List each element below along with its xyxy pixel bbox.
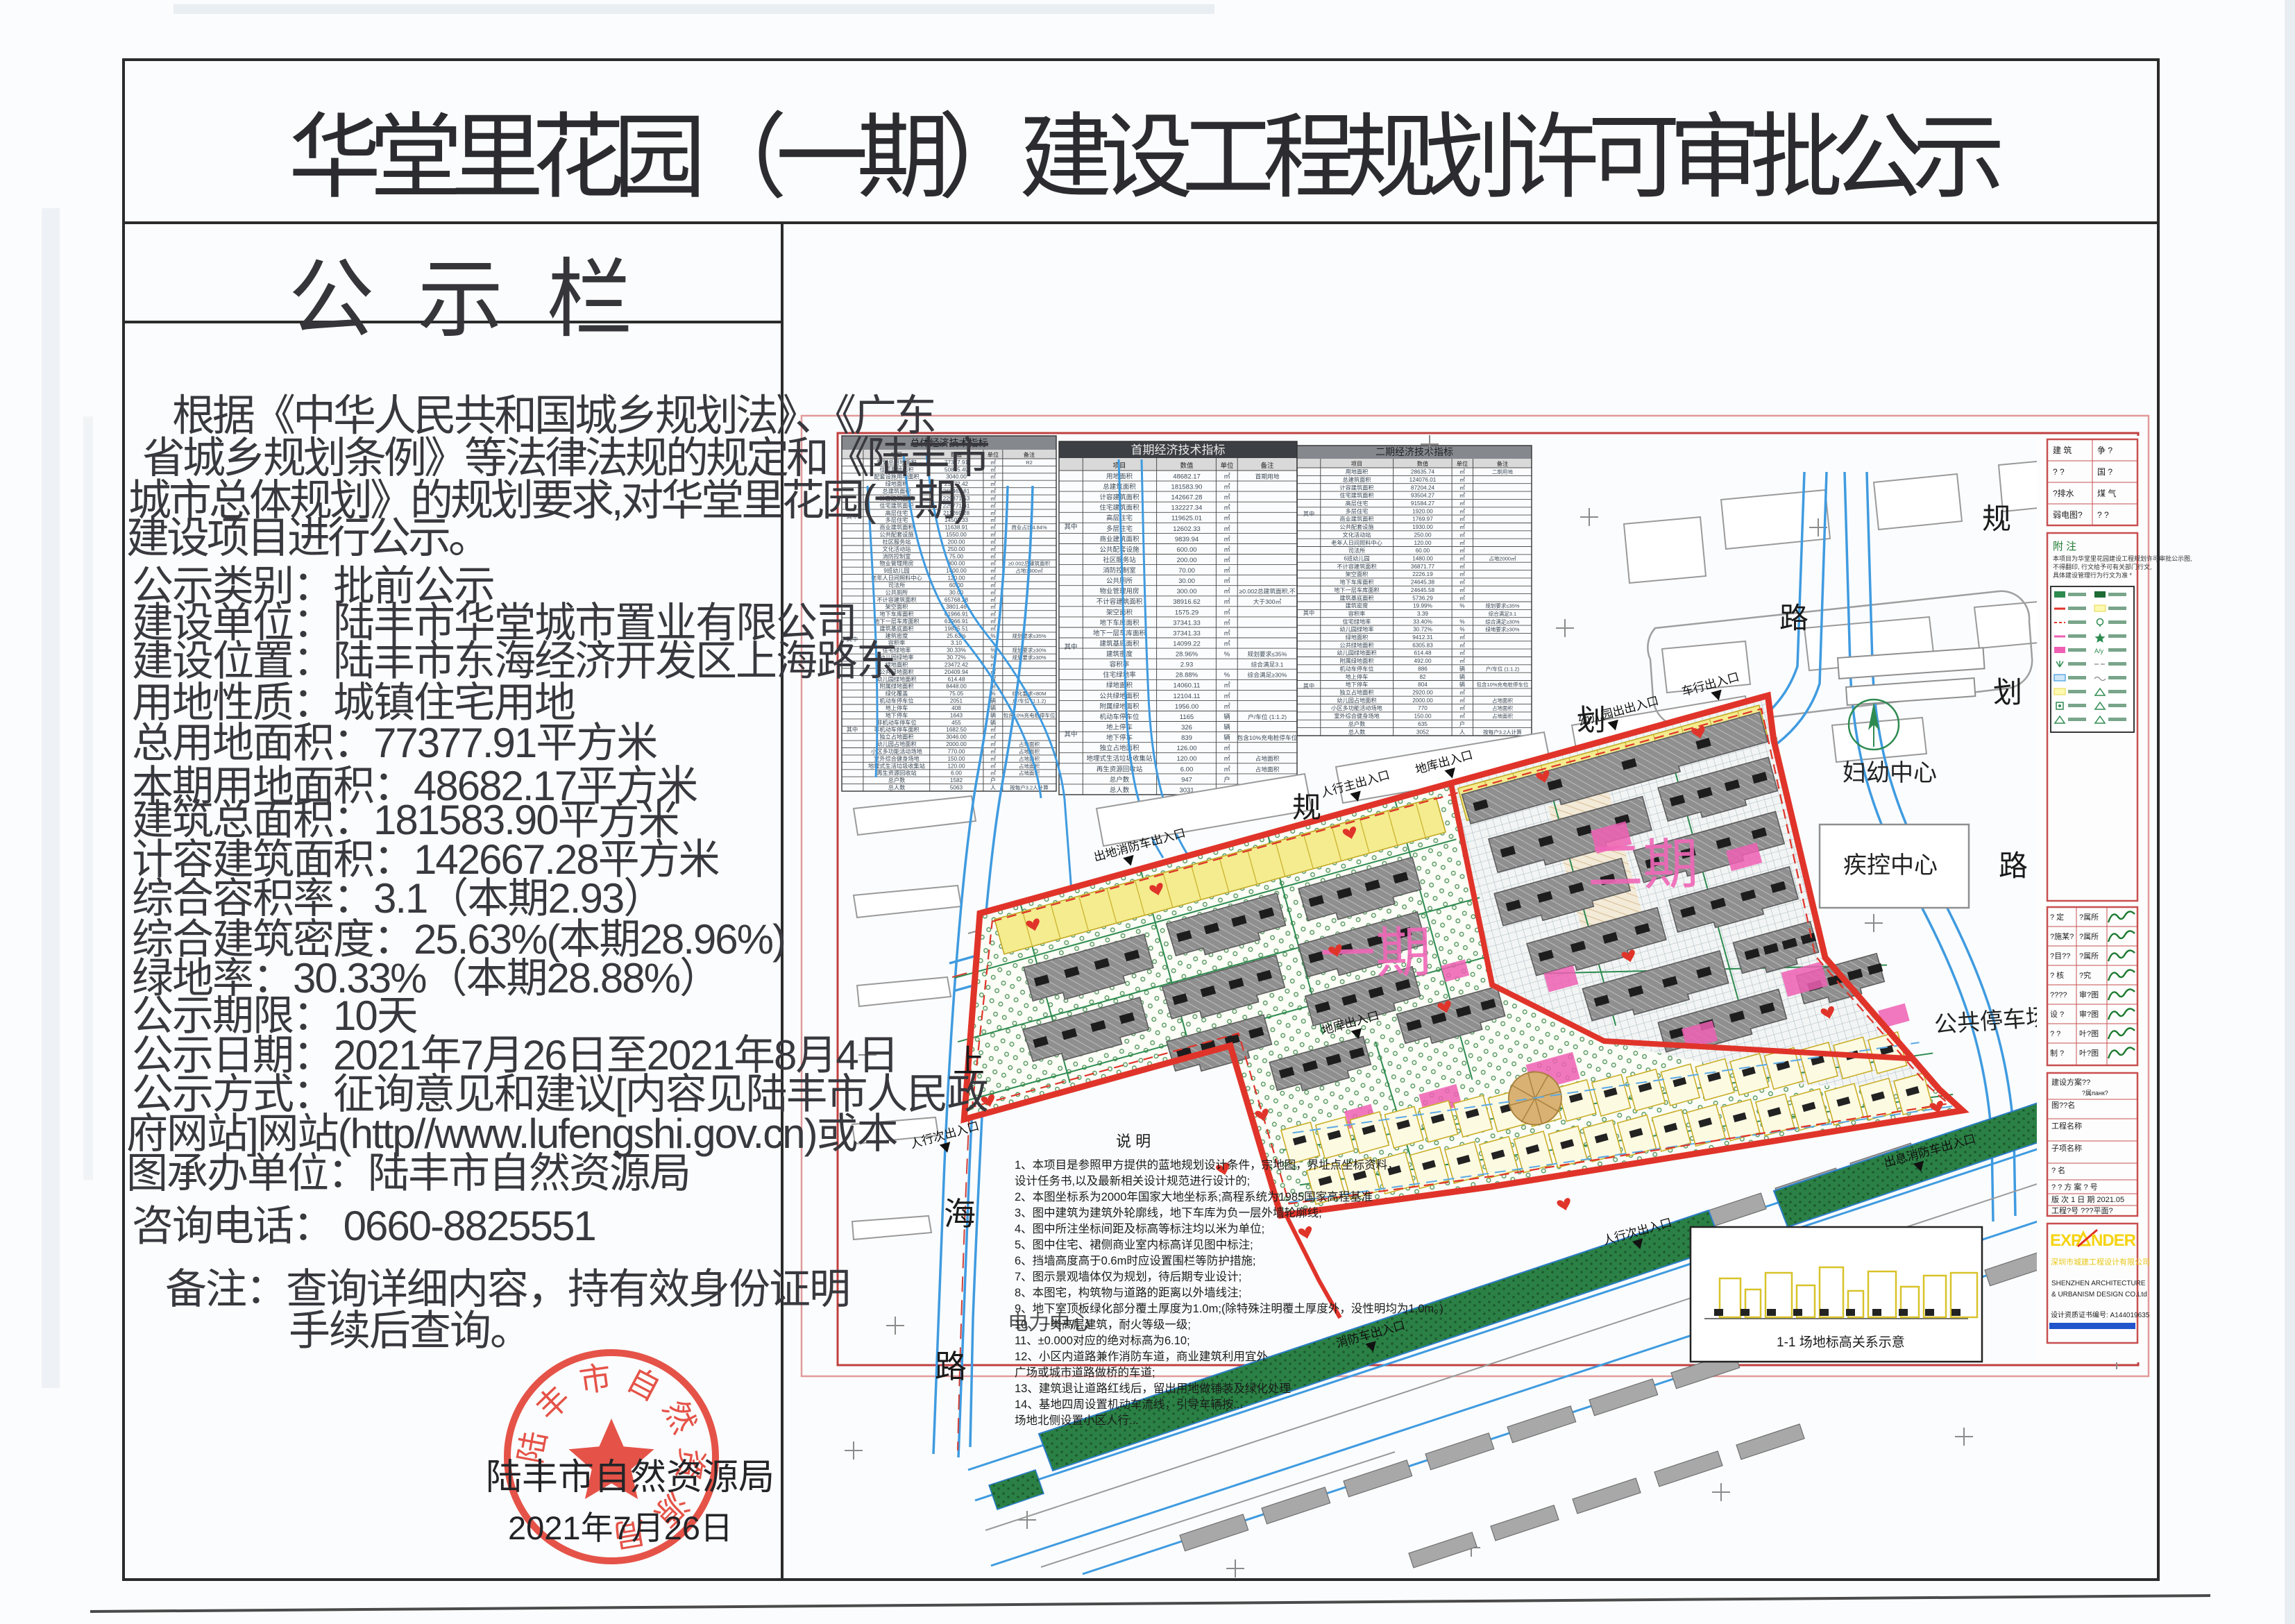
svg-text:辆: 辆 xyxy=(1223,734,1230,742)
svg-text:辆: 辆 xyxy=(1223,713,1230,721)
svg-text:408: 408 xyxy=(951,705,961,711)
svg-text:设计资质证书编号: A144019635: 设计资质证书编号: A144019635 xyxy=(2051,1310,2150,1319)
svg-text:规: 规 xyxy=(1292,791,1321,824)
svg-text:㎡: ㎡ xyxy=(1223,484,1230,491)
svg-text:? ?: ? ? xyxy=(2053,467,2065,477)
svg-text:87204.24: 87204.24 xyxy=(1411,484,1435,491)
svg-text:㎡: ㎡ xyxy=(1223,505,1230,512)
svg-text:%: % xyxy=(1459,627,1464,633)
svg-text:附属绿地面积: 附属绿地面积 xyxy=(1099,702,1140,711)
svg-text:妇幼中心: 妇幼中心 xyxy=(1843,760,1937,786)
svg-text:商业建筑面积: 商业建筑面积 xyxy=(1339,516,1373,523)
svg-text:二期经济技术指标: 二期经济技术指标 xyxy=(1375,446,1453,457)
svg-text:㎡: ㎡ xyxy=(1223,693,1230,700)
svg-text:地上停车: 地上停车 xyxy=(1346,673,1369,680)
svg-text:13、建筑退让道路红线后，留出用地做铺装及绿化处理: 13、建筑退让道路红线后，留出用地做铺装及绿化处理 xyxy=(1015,1382,1291,1395)
svg-text:建筑基底面积: 建筑基底面积 xyxy=(1339,594,1373,601)
svg-text:14、基地四周设置机动车流线，引导车辆按...: 14、基地四周设置机动车流线，引导车辆按... xyxy=(1015,1398,1243,1411)
svg-text:煤 气: 煤 气 xyxy=(2097,488,2116,498)
svg-text:㎡: ㎡ xyxy=(1459,587,1465,593)
svg-text:户/车位 (1:1.2): 户/车位 (1:1.2) xyxy=(1248,713,1287,720)
svg-text:? 名: ? 名 xyxy=(2051,1165,2065,1175)
svg-text:7、图示景观墙体仅为规划，待后期专业设计;: 7、图示景观墙体仅为规划，待后期专业设计; xyxy=(1015,1270,1242,1283)
svg-text:2.93: 2.93 xyxy=(1180,661,1194,669)
svg-text:82: 82 xyxy=(1419,674,1426,680)
svg-text:㎡: ㎡ xyxy=(1459,548,1465,554)
svg-text:28.88%: 28.88% xyxy=(1176,672,1199,679)
svg-text:规划要求≤35%: 规划要求≤35% xyxy=(1012,632,1046,639)
svg-text:6班幼儿园: 6班幼儿园 xyxy=(1344,555,1369,562)
svg-text:地上停车: 地上停车 xyxy=(1106,723,1133,731)
svg-text:计容建筑面积: 计容建筑面积 xyxy=(1339,484,1373,491)
svg-text:司法所: 司法所 xyxy=(888,582,906,589)
svg-text:㎡: ㎡ xyxy=(1459,713,1465,720)
svg-text:119625.01: 119625.01 xyxy=(1171,515,1202,523)
svg-text:33.40%: 33.40% xyxy=(1413,618,1432,625)
svg-text:㎡: ㎡ xyxy=(1223,598,1230,606)
svg-text:机动车停车位: 机动车停车位 xyxy=(1099,713,1140,721)
svg-text:1-1 场地标高关系示意: 1-1 场地标高关系示意 xyxy=(1777,1335,1905,1350)
svg-text:占地面积: 占地面积 xyxy=(1019,741,1040,747)
svg-text:8448.00: 8448.00 xyxy=(946,684,967,690)
svg-text:包含10%充电桩停车位: 包含10%充电桩停车位 xyxy=(1476,681,1529,688)
svg-text:㎡: ㎡ xyxy=(1223,641,1230,648)
svg-text:高层住宅: 高层住宅 xyxy=(1346,500,1369,507)
svg-text:150.00: 150.00 xyxy=(1414,713,1431,720)
svg-text:㎡: ㎡ xyxy=(990,582,996,589)
svg-text:其中: 其中 xyxy=(1303,609,1314,616)
svg-text:住宅绿地率: 住宅绿地率 xyxy=(1103,671,1136,679)
svg-text:1769.97: 1769.97 xyxy=(1412,516,1433,523)
svg-text:6.00: 6.00 xyxy=(951,770,962,777)
svg-text:㎡: ㎡ xyxy=(990,525,996,531)
svg-text:辆: 辆 xyxy=(1223,723,1230,731)
svg-text:建筑密度: 建筑密度 xyxy=(1106,650,1133,659)
svg-text:总户数: 总户数 xyxy=(1110,775,1130,784)
svg-text:1550.00: 1550.00 xyxy=(946,532,967,538)
svg-text:说 明: 说 明 xyxy=(1116,1133,1151,1150)
svg-text:?目??: ?目?? xyxy=(2050,952,2070,961)
svg-text:路: 路 xyxy=(935,1348,967,1385)
svg-text:物业管理用房: 物业管理用房 xyxy=(879,560,913,567)
svg-text:㎡: ㎡ xyxy=(1459,690,1465,696)
svg-text:再生资源回收站: 再生资源回收站 xyxy=(1096,765,1143,773)
svg-text:㎡: ㎡ xyxy=(990,625,996,632)
svg-text:叶?图: 叶?图 xyxy=(2079,1029,2099,1038)
svg-text:消防控制室: 消防控制室 xyxy=(1103,566,1136,575)
svg-text:839: 839 xyxy=(1181,734,1192,742)
svg-text:947: 947 xyxy=(1181,776,1192,784)
svg-text:㎡: ㎡ xyxy=(1223,629,1230,637)
svg-text:30.72%: 30.72% xyxy=(1413,627,1432,633)
svg-text:容积率: 容积率 xyxy=(1110,661,1130,669)
svg-text:250.00: 250.00 xyxy=(947,546,965,552)
svg-text:48682.17: 48682.17 xyxy=(1173,473,1201,480)
svg-text:㎡: ㎡ xyxy=(1459,634,1465,641)
svg-text:1920.00: 1920.00 xyxy=(1412,508,1433,514)
svg-text:132227.34: 132227.34 xyxy=(1171,505,1203,512)
svg-text:142667.28: 142667.28 xyxy=(1171,494,1203,502)
svg-text:地下一层车库面积: 地下一层车库面积 xyxy=(1334,586,1380,593)
svg-text:社区服务站: 社区服务站 xyxy=(1103,556,1136,564)
svg-text:A/y: A/y xyxy=(2094,648,2104,654)
svg-text:幼儿园占地面积: 幼儿园占地面积 xyxy=(1337,697,1376,704)
svg-text:200.00: 200.00 xyxy=(1176,557,1196,564)
svg-text:小区多功能活动场地: 小区多功能活动场地 xyxy=(1331,704,1382,711)
svg-text:设计任务书,以及最新相关设计规范进行设计的;: 设计任务书,以及最新相关设计规范进行设计的; xyxy=(1015,1174,1250,1187)
svg-text:公共配套设施: 公共配套设施 xyxy=(1099,545,1140,554)
svg-text:户: 户 xyxy=(990,777,996,784)
svg-text:㎡: ㎡ xyxy=(990,727,996,733)
svg-text:120.00: 120.00 xyxy=(947,575,965,582)
svg-text:614.48: 614.48 xyxy=(1414,650,1431,657)
svg-text:6、挡墙高度高于0.6m时应设置围栏等防护措施;: 6、挡墙高度高于0.6m时应设置围栏等防护措施; xyxy=(1015,1254,1255,1267)
svg-text:150.00: 150.00 xyxy=(947,756,965,762)
svg-text:30.72%: 30.72% xyxy=(947,654,966,661)
svg-text:2、本图坐标系为2000年国家大地坐标系;高程系统为1985: 2、本图坐标系为2000年国家大地坐标系;高程系统为1985国家高程基准 xyxy=(1015,1190,1373,1203)
svg-text:㎡: ㎡ xyxy=(1223,494,1230,502)
svg-text:不计容建筑面积: 不计容建筑面积 xyxy=(1337,563,1376,570)
svg-text:路: 路 xyxy=(1779,602,1809,634)
svg-text:其中: 其中 xyxy=(1303,682,1314,689)
svg-text:规划要求≤35%: 规划要求≤35% xyxy=(1248,650,1287,658)
svg-text:备注: 备注 xyxy=(1260,462,1274,470)
svg-text:户: 户 xyxy=(1459,720,1465,727)
svg-text:综合满足3.1: 综合满足3.1 xyxy=(1251,661,1284,668)
svg-text:㎡: ㎡ xyxy=(1223,515,1230,523)
svg-text:㎡: ㎡ xyxy=(990,532,996,538)
svg-text:占地面积: 占地面积 xyxy=(1492,704,1513,711)
svg-text:项目: 项目 xyxy=(1351,461,1362,467)
svg-text:㎡: ㎡ xyxy=(1459,469,1465,475)
svg-text:独立占地面积: 独立占地面积 xyxy=(1099,744,1140,752)
svg-text:幼儿园占地面积: 幼儿园占地面积 xyxy=(876,741,916,747)
svg-text:㎡: ㎡ xyxy=(1459,540,1465,546)
svg-text:㎡: ㎡ xyxy=(1459,500,1465,507)
svg-text:9、地下室顶板绿化部分覆土厚度为1.0m;(除特殊注明覆土厚: 9、地下室顶板绿化部分覆土厚度为1.0m;(除特殊注明覆土厚度外，没性明均为1.… xyxy=(1015,1302,1443,1315)
svg-text:㎡: ㎡ xyxy=(1223,703,1230,711)
svg-text:%: % xyxy=(990,633,995,639)
svg-text:文化活动站: 文化活动站 xyxy=(883,545,911,552)
svg-text:14060.11: 14060.11 xyxy=(1174,682,1201,690)
svg-text:455: 455 xyxy=(951,720,961,726)
svg-text:室外综合健身场地: 室外综合健身场地 xyxy=(1334,713,1380,720)
svg-text:辆: 辆 xyxy=(1459,673,1465,680)
svg-text:辆: 辆 xyxy=(990,711,996,718)
svg-text:首期经济技术指标: 首期经济技术指标 xyxy=(1131,443,1226,457)
svg-text:635: 635 xyxy=(1418,721,1428,727)
svg-text:38916.62: 38916.62 xyxy=(1173,598,1201,606)
svg-text:㎡: ㎡ xyxy=(1459,508,1465,514)
svg-text:30.33%: 30.33% xyxy=(947,648,966,654)
svg-text:?排水: ?排水 xyxy=(2053,489,2074,498)
svg-text:物业管理用房: 物业管理用房 xyxy=(1099,587,1139,595)
svg-text:公共厕所: 公共厕所 xyxy=(886,589,908,595)
svg-text:总户数: 总户数 xyxy=(888,777,906,784)
svg-text:㎡: ㎡ xyxy=(1459,642,1465,648)
svg-text:㎡: ㎡ xyxy=(990,734,996,741)
svg-text:24645.38: 24645.38 xyxy=(1411,580,1435,586)
svg-text:架空面积: 架空面积 xyxy=(1346,570,1369,577)
svg-text:幼儿园绿地面积: 幼儿园绿地面积 xyxy=(1337,650,1376,657)
svg-text:地下停车: 地下停车 xyxy=(1346,681,1369,688)
svg-text:3.10: 3.10 xyxy=(951,640,962,646)
svg-text:其中: 其中 xyxy=(1064,730,1077,738)
svg-text:㎡: ㎡ xyxy=(1459,477,1465,483)
svg-text:? ?: ? ? xyxy=(2097,510,2109,520)
svg-text:其中: 其中 xyxy=(1064,523,1077,531)
svg-text:制 ?: 制 ? xyxy=(2050,1049,2064,1058)
svg-text:㎡: ㎡ xyxy=(1459,532,1465,539)
svg-text:总户数: 总户数 xyxy=(1348,720,1366,727)
svg-text:㎡: ㎡ xyxy=(990,763,996,769)
svg-text:公共绿地面积: 公共绿地面积 xyxy=(1099,692,1140,700)
svg-text:住宅建筑面积: 住宅建筑面积 xyxy=(1339,492,1373,499)
svg-text:1643: 1643 xyxy=(950,712,963,718)
svg-text:37341.33: 37341.33 xyxy=(1173,629,1201,637)
svg-text:㎡: ㎡ xyxy=(1223,473,1230,480)
svg-text:770: 770 xyxy=(1418,705,1428,711)
svg-text:幼儿园绿地率: 幼儿园绿地率 xyxy=(1339,626,1373,633)
svg-text:37341.33: 37341.33 xyxy=(1173,619,1201,627)
svg-text:10、一类高层建筑，耐火等级一级;: 10、一类高层建筑，耐火等级一级; xyxy=(1015,1318,1191,1331)
svg-text:㎡: ㎡ xyxy=(1459,580,1465,586)
svg-text:叶?图: 叶?图 xyxy=(2079,1049,2099,1058)
svg-text:备注: 备注 xyxy=(1024,451,1035,458)
svg-text:单位: 单位 xyxy=(1457,460,1468,467)
svg-text:120.00: 120.00 xyxy=(1414,540,1431,546)
svg-text:场地北侧设置小区人行...: 场地北侧设置小区人行... xyxy=(1015,1414,1139,1427)
svg-text:社区服务站: 社区服务站 xyxy=(883,539,911,545)
svg-text:人: 人 xyxy=(990,785,996,791)
svg-text:6.00: 6.00 xyxy=(1180,766,1194,773)
svg-text:占地面积: 占地面积 xyxy=(1019,762,1040,769)
svg-text:㎡: ㎡ xyxy=(990,597,996,603)
svg-text:600.00: 600.00 xyxy=(1176,546,1196,554)
svg-text:%: % xyxy=(1459,618,1464,625)
svg-text:建筑基底面积: 建筑基底面积 xyxy=(1099,640,1140,648)
svg-text:建设方案??: 建设方案?? xyxy=(2051,1077,2090,1087)
svg-text:2226.19: 2226.19 xyxy=(1412,571,1433,577)
svg-text:≥0.002总建筑面积,不: ≥0.002总建筑面积,不 xyxy=(1239,587,1295,595)
svg-text:61966.91: 61966.91 xyxy=(945,618,969,625)
svg-text:首期用地: 首期用地 xyxy=(1255,472,1280,480)
svg-text:室外综合健身场地: 室外综合健身场地 xyxy=(874,755,920,762)
svg-text:子项名称: 子项名称 xyxy=(2051,1143,2082,1153)
svg-text:㎡: ㎡ xyxy=(990,770,996,777)
svg-text:版 次 1 日 期 2021.05: 版 次 1 日 期 2021.05 xyxy=(2051,1194,2124,1204)
svg-text:?属панк?: ?属панк? xyxy=(2082,1090,2108,1097)
svg-text:91584.27: 91584.27 xyxy=(1411,500,1435,507)
svg-text:老年人日间照料中心: 老年人日间照料中心 xyxy=(871,575,922,582)
svg-text:辆: 辆 xyxy=(990,704,996,711)
svg-text:11、±0.000对应的绝对标高为6.10;: 11、±0.000对应的绝对标高为6.10; xyxy=(1015,1334,1190,1347)
svg-text:2000.00: 2000.00 xyxy=(1412,697,1433,704)
svg-text:本项目为华堂里花园建设工程规划许可审批公示图,: 本项目为华堂里花园建设工程规划许可审批公示图, xyxy=(2053,555,2192,562)
svg-text:%: % xyxy=(1459,603,1464,609)
svg-text:㎡: ㎡ xyxy=(1459,493,1465,499)
svg-text:㎡: ㎡ xyxy=(1459,516,1465,523)
svg-text:㎡: ㎡ xyxy=(1459,650,1465,657)
svg-text:公共厕所: 公共厕所 xyxy=(1106,577,1133,585)
svg-text:㎡: ㎡ xyxy=(990,589,996,595)
svg-text:㎡: ㎡ xyxy=(1223,557,1230,564)
svg-text:36871.77: 36871.77 xyxy=(1411,564,1435,570)
svg-text:公共绿地面积: 公共绿地面积 xyxy=(1339,641,1373,648)
svg-text:93504.27: 93504.27 xyxy=(1411,493,1435,499)
svg-text:?施某?: ?施某? xyxy=(2050,932,2074,941)
svg-text:用地面积: 用地面积 xyxy=(1346,468,1369,475)
svg-text:按每户3.2人计算: 按每户3.2人计算 xyxy=(1483,728,1522,735)
svg-text:886: 886 xyxy=(1418,666,1428,673)
svg-text:占地面积: 占地面积 xyxy=(1255,765,1280,772)
svg-text:12602.33: 12602.33 xyxy=(1173,525,1201,533)
svg-text:总人数: 总人数 xyxy=(1110,786,1130,794)
svg-text:㎡: ㎡ xyxy=(990,553,996,559)
svg-text:㎡: ㎡ xyxy=(990,539,996,545)
svg-text:300.00: 300.00 xyxy=(1176,588,1196,595)
svg-text:㎡: ㎡ xyxy=(1223,745,1230,752)
svg-text:地下一层车库面积: 地下一层车库面积 xyxy=(874,618,920,625)
svg-text:㎡: ㎡ xyxy=(1223,755,1230,763)
svg-text:5736.29: 5736.29 xyxy=(1412,595,1433,601)
svg-text:附属绿地面积: 附属绿地面积 xyxy=(1339,657,1373,664)
svg-text:户: 户 xyxy=(1223,775,1230,784)
svg-text:工程名称: 工程名称 xyxy=(2051,1121,2082,1131)
svg-text:辆: 辆 xyxy=(1459,681,1465,688)
svg-text:综合满足≥30%: 综合满足≥30% xyxy=(1248,671,1287,679)
svg-text:? 核: ? 核 xyxy=(2050,970,2064,980)
svg-text:地下停车: 地下停车 xyxy=(886,711,908,718)
svg-text:200.00: 200.00 xyxy=(947,539,965,545)
svg-text:R2: R2 xyxy=(1026,459,1033,466)
svg-text:地下车库面积: 地下车库面积 xyxy=(1339,579,1373,586)
svg-text:2051: 2051 xyxy=(950,698,963,704)
svg-text:㎡: ㎡ xyxy=(990,568,996,574)
svg-text:再生资源回收站: 再生资源回收站 xyxy=(876,770,916,777)
svg-text:辆: 辆 xyxy=(990,719,996,726)
svg-text:3046.00: 3046.00 xyxy=(946,734,967,741)
svg-text:划: 划 xyxy=(1993,676,2022,709)
svg-text:1165: 1165 xyxy=(1180,713,1194,721)
svg-text:争 ?: 争 ? xyxy=(2097,446,2112,455)
svg-text:设 ?: 设 ? xyxy=(2050,1010,2064,1019)
svg-text:㎡: ㎡ xyxy=(1223,766,1230,773)
svg-text:124076.01: 124076.01 xyxy=(1409,477,1437,483)
svg-text:? ? 方 案 ? 号: ? ? 方 案 ? 号 xyxy=(2051,1182,2098,1192)
svg-text:EXP: EXP xyxy=(2050,1231,2082,1250)
svg-text:审?图: 审?图 xyxy=(2079,990,2099,999)
svg-text:3801.46: 3801.46 xyxy=(946,604,967,610)
svg-text:建 筑: 建 筑 xyxy=(2053,445,2072,455)
svg-text:单位: 单位 xyxy=(1220,462,1234,470)
svg-text:120.00: 120.00 xyxy=(947,763,965,769)
svg-text:绿化覆盖: 绿化覆盖 xyxy=(886,690,908,697)
svg-text:㎡: ㎡ xyxy=(1459,524,1465,530)
svg-text:㎡: ㎡ xyxy=(1223,567,1230,575)
svg-text:1575.29: 1575.29 xyxy=(1175,609,1199,616)
svg-text:㎡: ㎡ xyxy=(990,502,996,509)
svg-text:9839.94: 9839.94 xyxy=(1175,536,1199,543)
svg-text:图??名: 图??名 xyxy=(2051,1100,2075,1110)
svg-text:㎡: ㎡ xyxy=(1223,525,1230,533)
svg-text:& URBANISM DESIGN CO.Ltd: & URBANISM DESIGN CO.Ltd xyxy=(2051,1291,2147,1299)
svg-text:独立占地面积: 独立占地面积 xyxy=(879,734,913,741)
svg-text:㎡: ㎡ xyxy=(990,756,996,762)
svg-text:不计容建筑面积: 不计容建筑面积 xyxy=(1096,598,1143,606)
svg-text:地埋式生活垃圾收集站: 地埋式生活垃圾收集站 xyxy=(1086,754,1153,763)
svg-text:二期: 二期 xyxy=(1586,833,1699,897)
svg-text:24645.58: 24645.58 xyxy=(1411,587,1435,593)
svg-text:1582: 1582 xyxy=(950,777,963,784)
svg-text:综合满足≥30%: 综合满足≥30% xyxy=(1485,618,1519,625)
svg-text:770.00: 770.00 xyxy=(947,748,965,754)
svg-text:海: 海 xyxy=(944,1196,976,1232)
svg-text:司法所: 司法所 xyxy=(1348,547,1366,554)
svg-text:公共配套设施: 公共配套设施 xyxy=(879,531,913,538)
svg-text:%: % xyxy=(1224,651,1230,659)
svg-text:30.00: 30.00 xyxy=(1178,577,1195,585)
svg-text:㎡: ㎡ xyxy=(990,474,996,480)
svg-text:㎡: ㎡ xyxy=(990,496,996,502)
svg-text:75.05: 75.05 xyxy=(949,691,964,697)
svg-text:备注: 备注 xyxy=(1497,460,1508,467)
svg-text:?属所: ?属所 xyxy=(2079,932,2099,941)
svg-text:1956.00: 1956.00 xyxy=(1175,703,1199,711)
svg-text:?属所: ?属所 xyxy=(2079,951,2099,961)
svg-text:㎡: ㎡ xyxy=(1223,609,1230,616)
svg-text:㎡: ㎡ xyxy=(1459,595,1465,601)
svg-text:126.00: 126.00 xyxy=(1176,745,1196,752)
svg-text:㎡: ㎡ xyxy=(990,561,996,567)
svg-text:㎡: ㎡ xyxy=(990,604,996,610)
svg-text:㎡: ㎡ xyxy=(1223,588,1230,595)
svg-text:1682.50: 1682.50 xyxy=(946,727,967,733)
svg-text:326: 326 xyxy=(1181,724,1192,731)
svg-text:审?图: 审?图 xyxy=(2079,1009,2099,1019)
svg-text:? ?: ? ? xyxy=(2050,1030,2060,1038)
svg-text:工程?号 ???平面?: 工程?号 ???平面? xyxy=(2051,1206,2113,1215)
svg-text:绿地要求≥30%: 绿地要求≥30% xyxy=(1485,626,1519,633)
svg-text:14099.22: 14099.22 xyxy=(1173,641,1201,648)
svg-text:弱电图?: 弱电图? xyxy=(2053,510,2083,520)
svg-text:NDER: NDER xyxy=(2091,1231,2136,1250)
svg-text:?究: ?究 xyxy=(2079,970,2091,980)
svg-text:占地2000㎡: 占地2000㎡ xyxy=(1489,555,1516,562)
svg-text:SHENZHEN ARCHITECTURE: SHENZHEN ARCHITECTURE xyxy=(2051,1280,2146,1287)
svg-text:规划要求≥30%: 规划要求≥30% xyxy=(1012,647,1046,654)
svg-text:其中: 其中 xyxy=(1303,510,1314,517)
svg-text:独立占地面积: 独立占地面积 xyxy=(1339,689,1373,696)
svg-text:公共配套设施: 公共配套设施 xyxy=(1339,523,1373,530)
svg-text:1930.00: 1930.00 xyxy=(1412,524,1433,530)
svg-text:地下车库面积: 地下车库面积 xyxy=(879,611,913,618)
svg-text:机动车停车位: 机动车停车位 xyxy=(1339,666,1373,673)
svg-text:不计容建筑面积: 不计容建筑面积 xyxy=(876,596,916,603)
svg-text:㎡: ㎡ xyxy=(990,466,996,473)
svg-text:28.96%: 28.96% xyxy=(1176,651,1199,659)
svg-text:804: 804 xyxy=(1418,682,1428,688)
svg-text:????: ???? xyxy=(2050,991,2067,999)
svg-text:包含10%充电桩停车位: 包含10%充电桩停车位 xyxy=(1237,734,1298,741)
svg-text:路: 路 xyxy=(1999,849,2028,882)
svg-text:㎡: ㎡ xyxy=(990,741,996,747)
svg-text:㎡: ㎡ xyxy=(1223,577,1230,585)
svg-text:绿地面积: 绿地面积 xyxy=(1106,682,1133,690)
svg-text:辆: 辆 xyxy=(1459,666,1465,673)
svg-text:规: 规 xyxy=(1982,502,2011,535)
svg-text:人: 人 xyxy=(1459,729,1465,735)
